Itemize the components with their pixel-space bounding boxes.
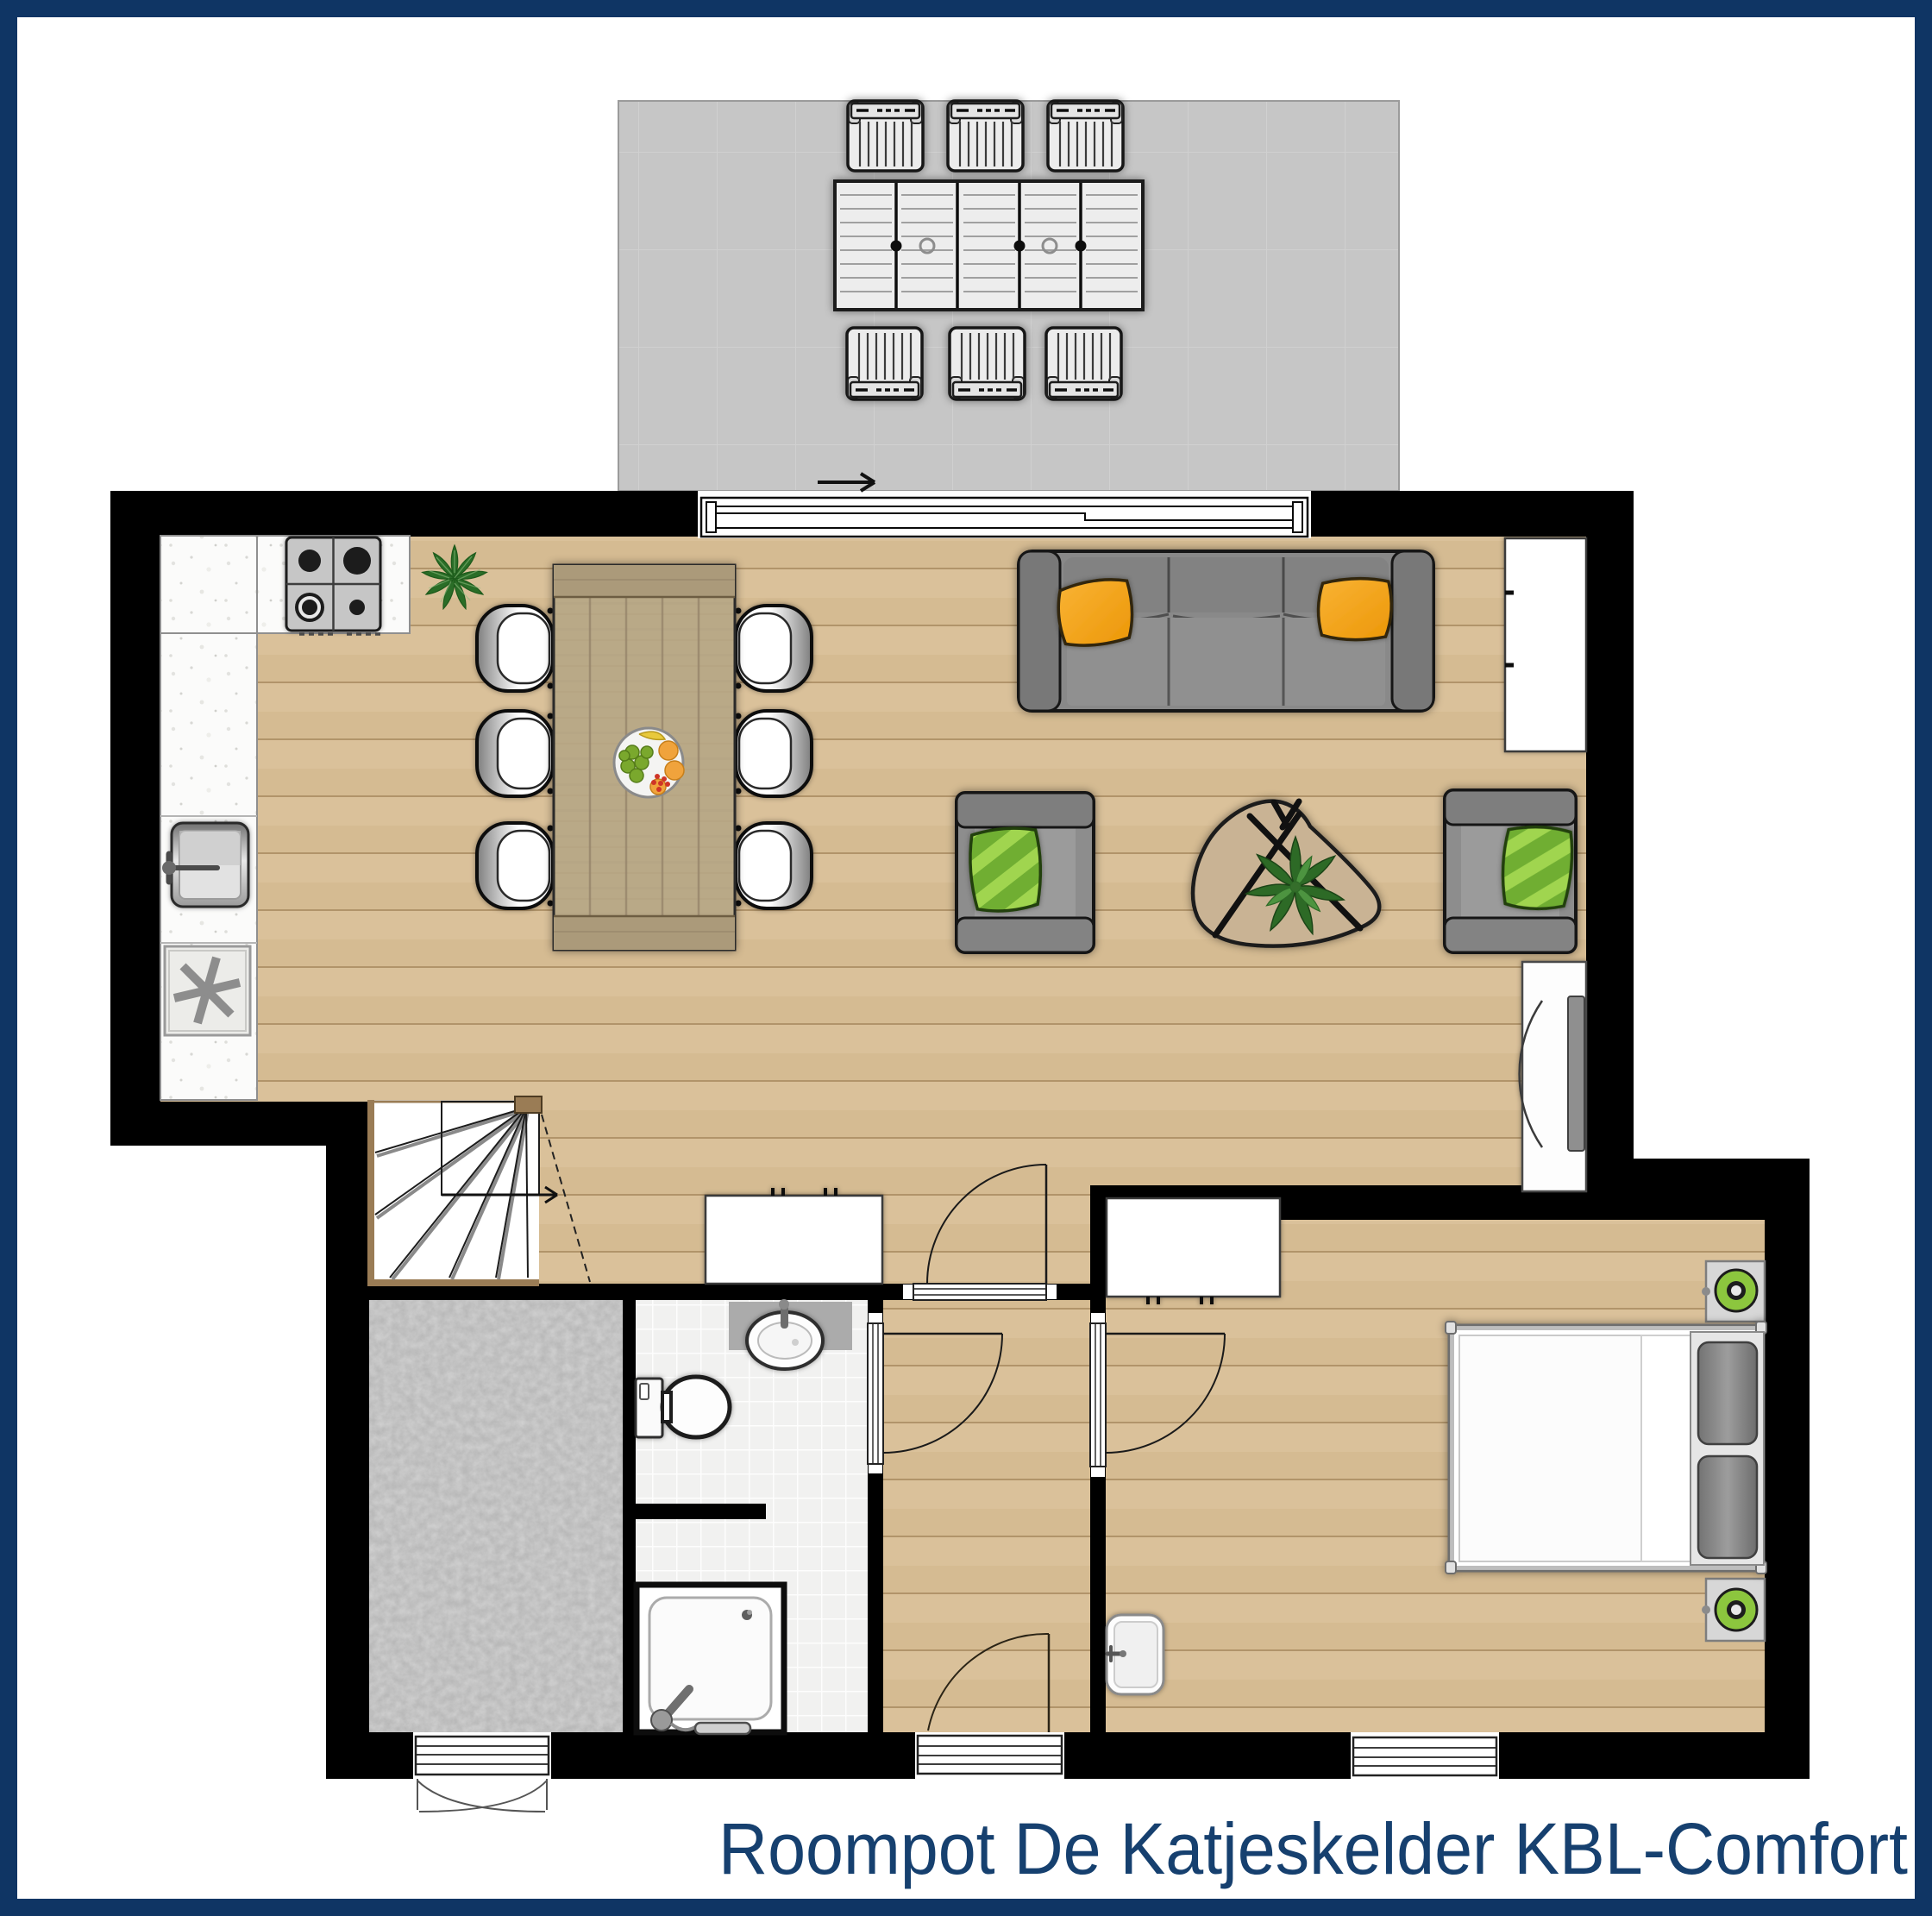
svg-text:Roompot De Katjeskelder KBL-Co: Roompot De Katjeskelder KBL-Comfort (718, 1808, 1908, 1889)
